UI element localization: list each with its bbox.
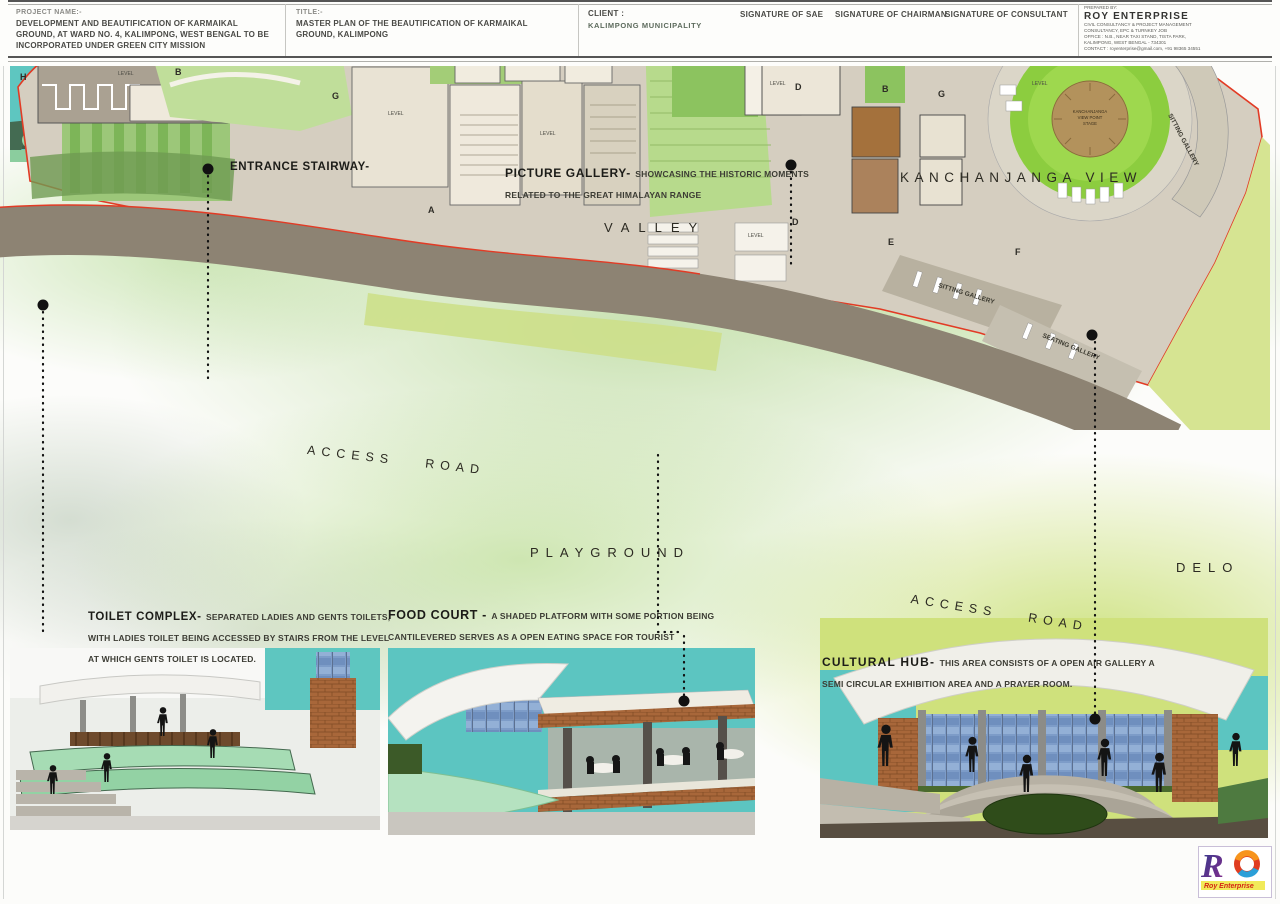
strip-border-bottom bbox=[8, 56, 1272, 58]
client-value: KALIMPONG MUNICIPALITY bbox=[588, 21, 733, 30]
svg-text:D: D bbox=[795, 82, 802, 92]
svg-text:B: B bbox=[882, 84, 889, 94]
project-name-label: PROJECT NAME:- bbox=[16, 9, 274, 16]
cultural-hub-caption-title: CULTURAL HUB- bbox=[822, 655, 935, 669]
food-court-caption-title: FOOD COURT - bbox=[388, 608, 487, 622]
toilet-caption: TOILET COMPLEX- SEPARATED LADIES AND GEN… bbox=[88, 606, 393, 668]
svg-text:D: D bbox=[792, 217, 799, 227]
strip-divider-1 bbox=[285, 4, 286, 56]
toilet-caption-title: TOILET COMPLEX- bbox=[88, 611, 202, 623]
roy-enterprise-logo-graphic: R Roy Enterprise bbox=[1199, 847, 1269, 895]
svg-text:G: G bbox=[332, 91, 339, 101]
playground-label: PLAYGROUND bbox=[530, 545, 690, 560]
svg-text:A: A bbox=[428, 205, 435, 215]
svg-text:H: H bbox=[20, 72, 27, 82]
signature-sae: SIGNATURE OF SAE bbox=[740, 10, 823, 19]
level-label: LEVEL bbox=[540, 131, 556, 137]
kanchanjanga-view-label: KANCHANJANGA VIEW bbox=[900, 170, 1142, 185]
picture-gallery-caption: PICTURE GALLERY- SHOWCASING THE HISTORIC… bbox=[505, 163, 825, 205]
project-name-value: DEVELOPMENT AND BEAUTIFICATION OF KARMAI… bbox=[16, 19, 274, 51]
strip-border-top bbox=[8, 0, 1272, 2]
roy-enterprise-logo: R Roy Enterprise bbox=[1198, 846, 1272, 898]
picture-gallery-caption-title: PICTURE GALLERY- bbox=[505, 166, 631, 180]
brick-tower bbox=[310, 678, 356, 748]
firm-detail-5: CONTACT : royenterprise@gmail.com, +91 9… bbox=[1084, 46, 1196, 52]
toilet-complex-render bbox=[10, 648, 380, 830]
client-cell: CLIENT : KALIMPONG MUNICIPALITY bbox=[588, 9, 733, 30]
planter bbox=[388, 744, 422, 774]
strip-border-top2 bbox=[8, 4, 1272, 5]
entrance-caption-title: ENTRANCE STAIRWAY- bbox=[230, 161, 370, 173]
signature-chairman: SIGNATURE OF CHAIRMAN bbox=[835, 10, 947, 19]
prepared-by-cell: PREPARED BY: ROY ENTERPRISE CIVIL CONSUL… bbox=[1084, 5, 1196, 52]
svg-text:G: G bbox=[938, 89, 945, 99]
title-cell: TITLE:- MASTER PLAN OF THE BEAUTIFICATIO… bbox=[296, 9, 546, 41]
svg-text:E: E bbox=[888, 237, 894, 247]
entrance-caption: ENTRANCE STAIRWAY- bbox=[230, 156, 370, 177]
level-label: LEVEL bbox=[770, 81, 786, 87]
cultural-hub-render bbox=[820, 618, 1268, 838]
title-value: MASTER PLAN OF THE BEAUTIFICATION OF KAR… bbox=[296, 19, 546, 41]
viewpoint-line3: STAGE bbox=[1083, 121, 1097, 126]
project-name-cell: PROJECT NAME:- DEVELOPMENT AND BEAUTIFIC… bbox=[16, 9, 274, 51]
strip-border-bottom2 bbox=[8, 61, 1272, 62]
signature-consultant: SIGNATURE OF CONSULTANT bbox=[945, 10, 1068, 19]
level-label: LEVEL bbox=[1032, 81, 1048, 87]
viewpoint-line2: VIEW POINT bbox=[1078, 115, 1103, 120]
delo-label: DELO bbox=[1176, 560, 1239, 575]
food-court-render bbox=[388, 648, 755, 835]
svg-text:R: R bbox=[1200, 848, 1224, 885]
title-block: PROJECT NAME:- DEVELOPMENT AND BEAUTIFIC… bbox=[0, 0, 1280, 66]
client-label: CLIENT : bbox=[588, 9, 733, 18]
svg-text:F: F bbox=[1015, 247, 1021, 257]
firm-detail-3: OFFICE : N.B., NEAR TAXI STAND, TISTA PA… bbox=[1084, 34, 1196, 40]
lawn-circle bbox=[983, 794, 1107, 834]
food-court-caption: FOOD COURT - A SHADED PLATFORM WITH SOME… bbox=[388, 605, 723, 647]
title-label: TITLE:- bbox=[296, 9, 546, 16]
valley-label: VALLEY bbox=[604, 220, 706, 235]
strip-divider-3 bbox=[1078, 4, 1079, 56]
firm-name: ROY ENTERPRISE bbox=[1084, 11, 1196, 22]
logo-caption: Roy Enterprise bbox=[1204, 883, 1254, 890]
plaza-floor bbox=[388, 812, 755, 835]
viewpoint-line1: KANCHANJANGA bbox=[1073, 109, 1108, 114]
svg-text:B: B bbox=[175, 67, 182, 77]
level-label: LEVEL bbox=[118, 71, 134, 77]
level-label: LEVEL bbox=[748, 233, 764, 239]
strip-divider-2 bbox=[578, 4, 579, 56]
cultural-hub-caption: CULTURAL HUB- THIS AREA CONSISTS OF A OP… bbox=[822, 652, 1157, 694]
level-label: LEVEL bbox=[388, 111, 404, 117]
